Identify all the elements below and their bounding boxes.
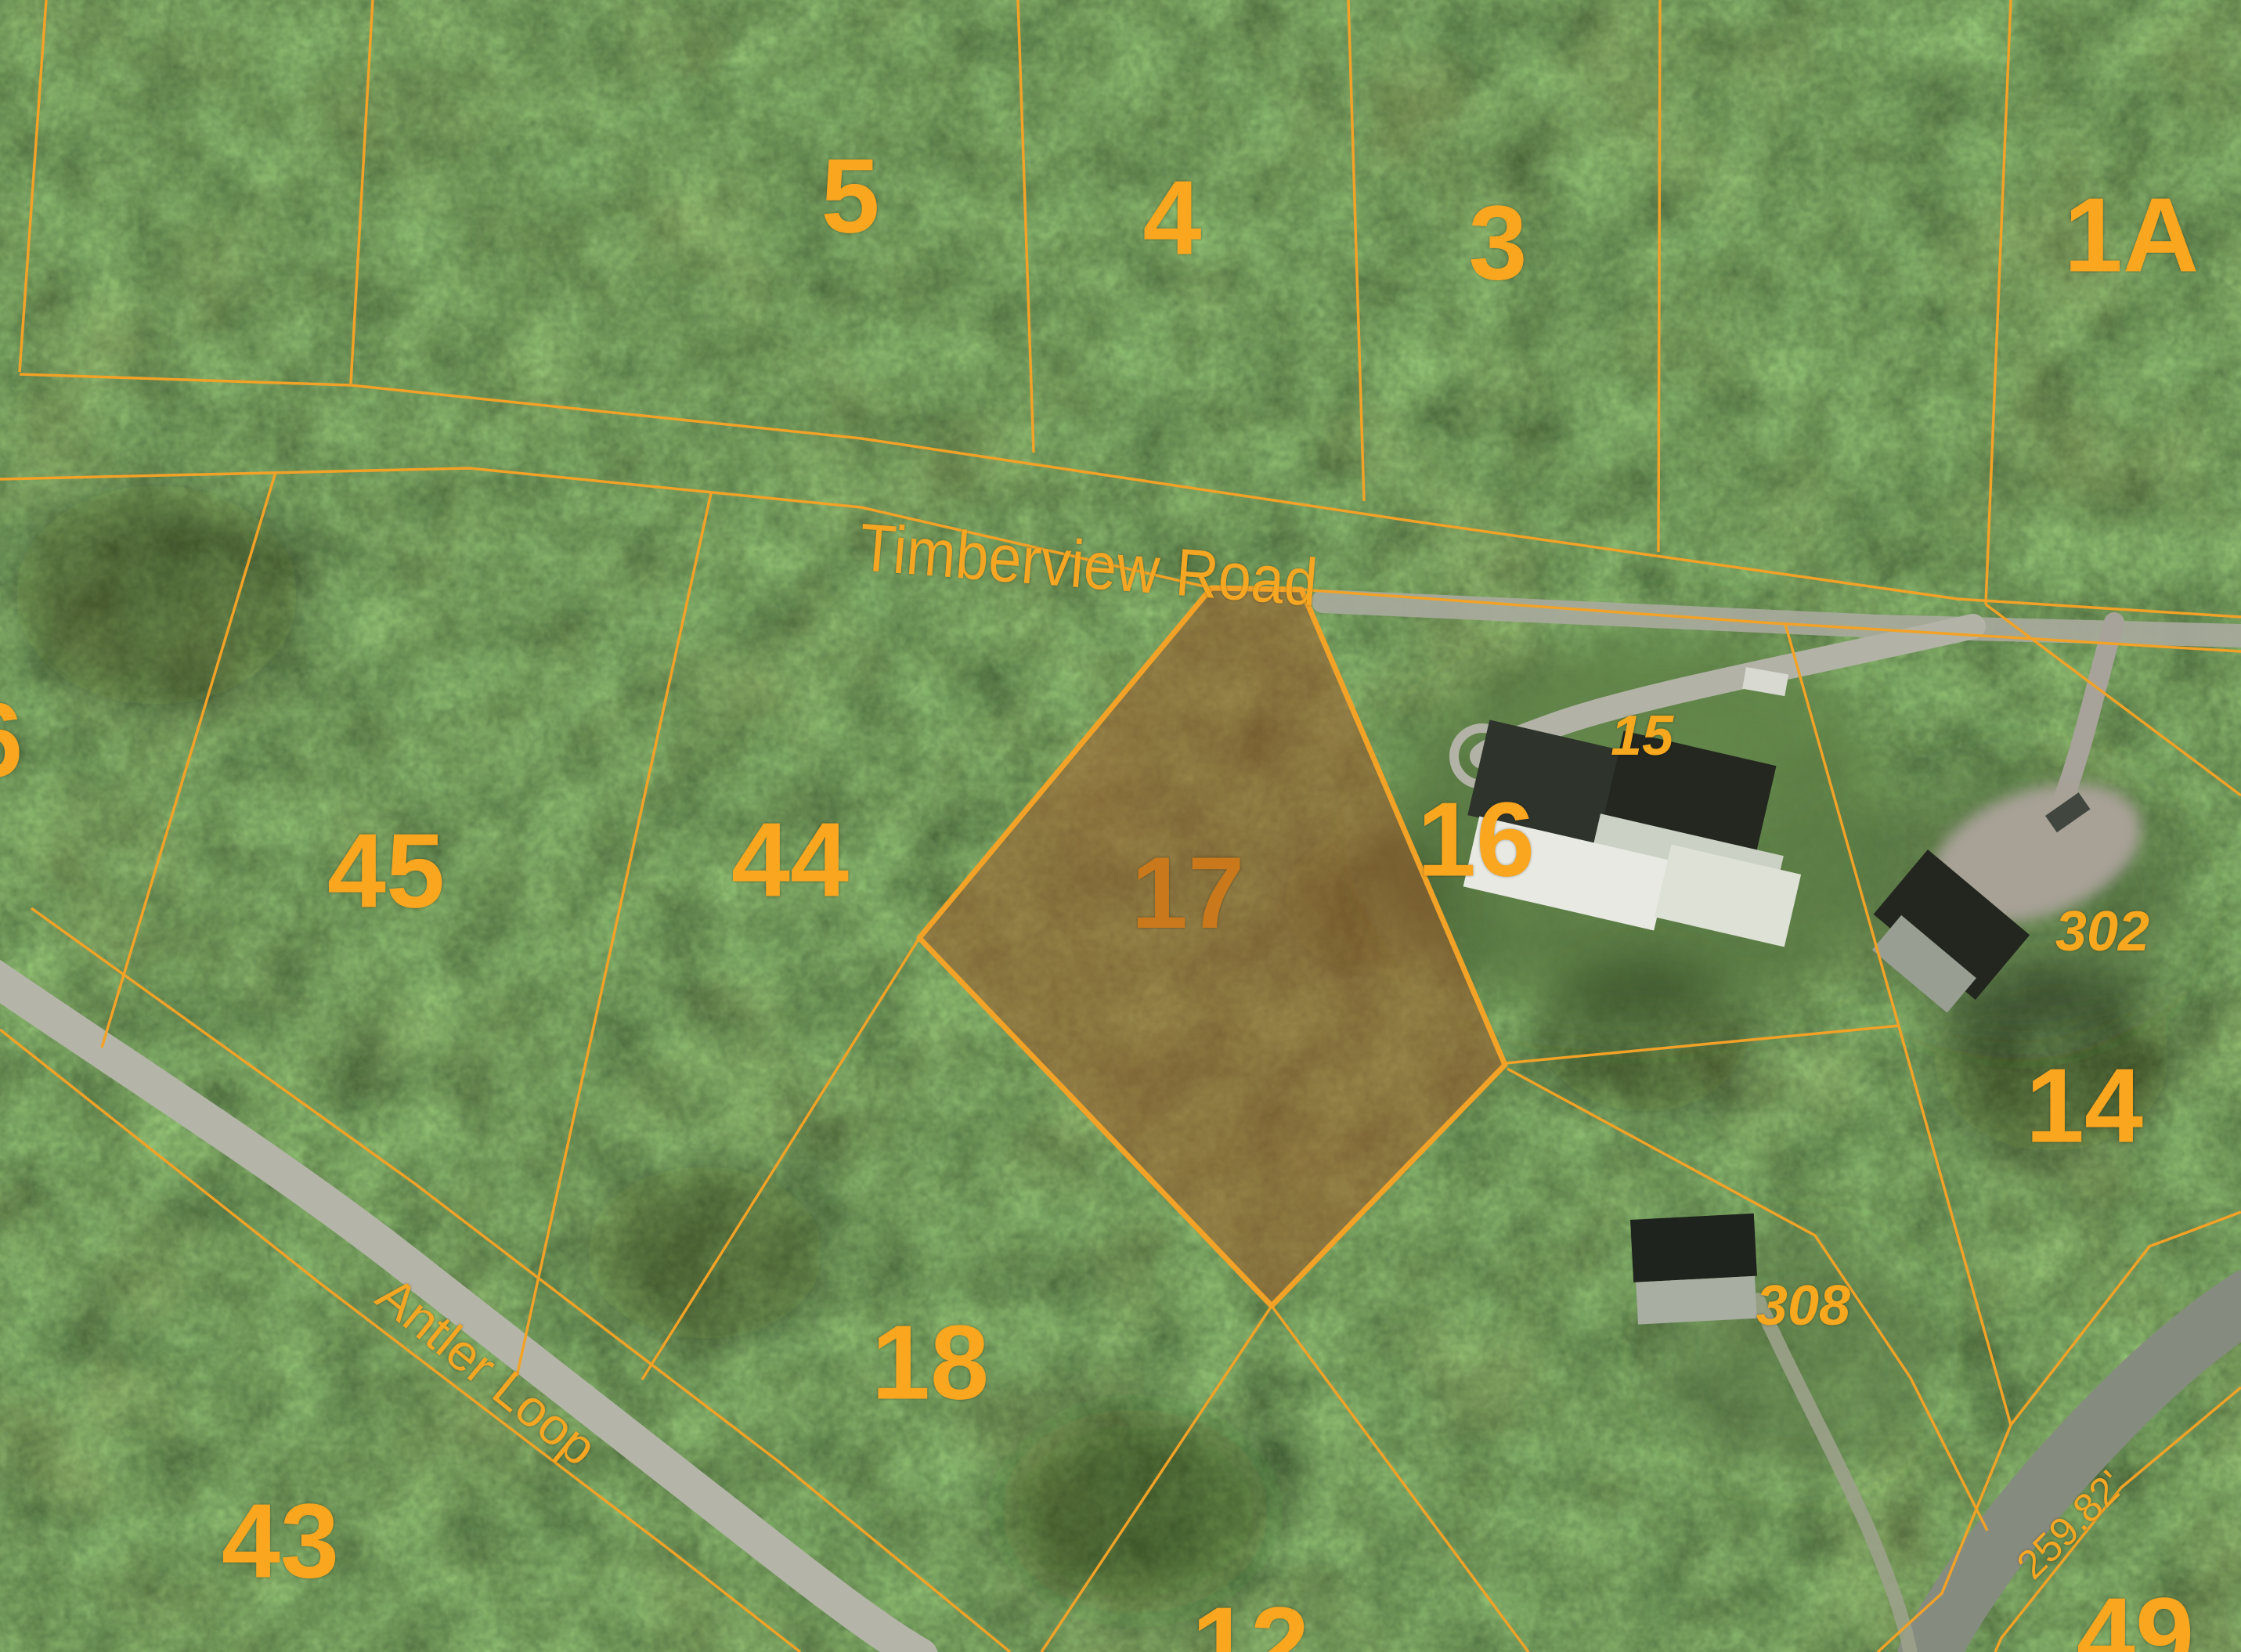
house-308 xyxy=(1630,1214,1759,1325)
map-canvas xyxy=(0,0,2241,1652)
parcel-map-viewport: 5431A645441716184312144915302308Timbervi… xyxy=(0,0,2241,1652)
boundary-line-lot3-right xyxy=(1658,0,1660,552)
